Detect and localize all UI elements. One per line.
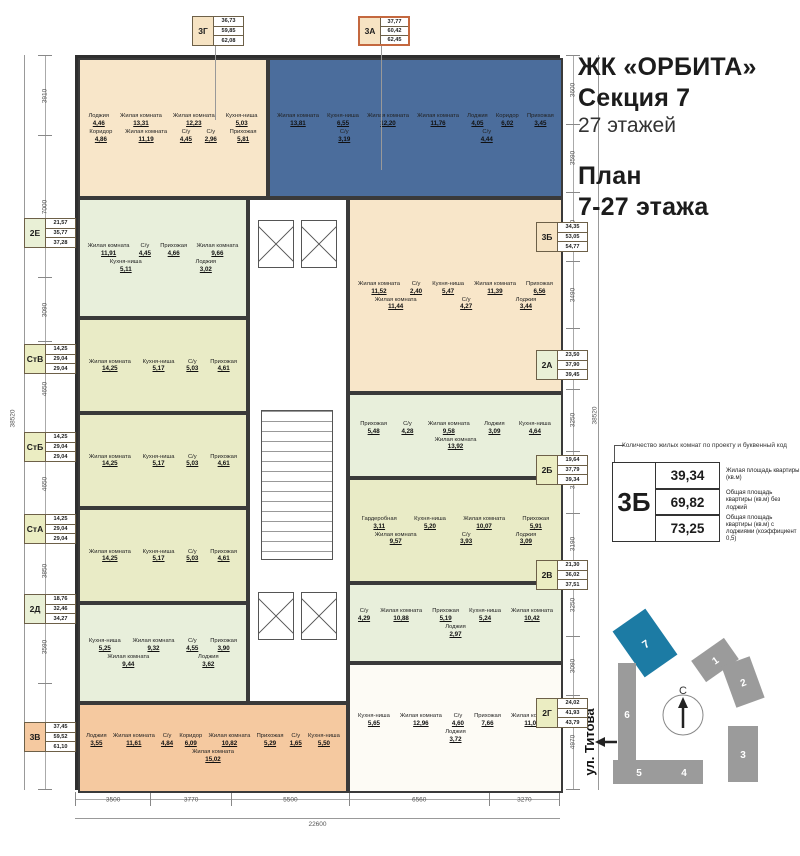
apartment-area-value: 14,25 [46, 515, 75, 525]
room-label: Жилая комната9,44 [107, 654, 149, 668]
apartment-area-value: 37,45 [46, 723, 75, 733]
room-label: С/у4,27 [460, 297, 472, 311]
room-label: С/у5,03 [186, 549, 198, 563]
room-label: Кухня-ниша4,64 [519, 421, 551, 435]
apartment-area-value: 29,04 [46, 364, 75, 373]
room-label: С/у1,65 [290, 733, 302, 747]
apartment-3a: Жилая комната13,81Кухня-ниша6,55Жилая ко… [268, 58, 563, 198]
apartment-area-value: 29,04 [46, 452, 75, 461]
room-label: Жилая комната11,61 [113, 733, 155, 747]
dimension-label: 3770 [184, 796, 198, 803]
room-label: Жилая комната11,91 [88, 243, 130, 257]
room-label: Жилая комната12,23 [173, 113, 215, 127]
svg-text:4: 4 [681, 768, 687, 779]
room-label: Кухня-ниша5,47 [432, 281, 464, 295]
room-label: С/у3,93 [460, 532, 472, 546]
dimension-label: 4650 [42, 477, 49, 491]
dimension-label: 7000 [42, 199, 49, 213]
apartment-area-value: 19,64 [558, 456, 587, 466]
apartment-2g: Кухня-ниша5,65Жилая комната12,96С/у4,60П… [348, 663, 563, 793]
apartment-code: 3Б [537, 223, 558, 251]
apartment-area-value: 60,42 [381, 27, 408, 36]
room-label: Жилая комната13,31 [120, 113, 162, 127]
compass-icon: С [663, 685, 703, 735]
room-label: С/у4,44 [481, 129, 493, 143]
svg-text:3: 3 [740, 750, 746, 761]
room-label: Жилая комната14,25 [89, 549, 131, 563]
legend-annotation-total-loggia: Общая площадь квартиры (кв.м) с лоджиями… [726, 514, 800, 544]
dimension-total-left: 38520 [10, 409, 17, 427]
room-label: Жилая комната11,19 [125, 129, 167, 143]
apartment-area-value: 37,28 [46, 238, 75, 247]
apartment-area-value: 29,04 [46, 355, 75, 365]
dimension-total-line-bottom [75, 818, 560, 819]
apartment-area-value: 29,04 [46, 443, 75, 453]
room-label: С/у4,84 [161, 733, 173, 747]
room-label: Лоджия3,72 [445, 729, 466, 743]
room-label: Лоджия3,55 [86, 733, 107, 747]
apartment-2b: Гардеробная3,11Кухня-ниша5,20Жилая комна… [348, 478, 563, 583]
room-label: Прихожая4,61 [210, 549, 237, 563]
room-label: Кухня-ниша5,17 [143, 454, 175, 468]
codebox-stv: СтВ14,2529,0429,04 [24, 344, 76, 374]
apartment-area-value: 54,77 [558, 242, 587, 251]
apartment-area-value: 37,77 [381, 18, 408, 27]
room-label: Жилая комната10,88 [380, 608, 422, 622]
legend-value-living: 39,34 [656, 462, 720, 490]
apartment-area-value: 53,05 [558, 233, 587, 243]
room-label: Лоджия3,09 [516, 532, 537, 546]
apartment-area-value: 37,90 [558, 361, 587, 371]
room-label: Жилая комната11,44 [375, 297, 417, 311]
plan-label: План [578, 161, 798, 192]
room-label: Кухня-ниша5,11 [110, 259, 142, 273]
apartment-area-value: 59,52 [46, 733, 75, 743]
floorplan-page: { "header": { "project": "ЖК «ОРБИТА»", … [0, 0, 800, 856]
legend-value-total-loggia: 73,25 [656, 514, 720, 542]
dimension-label: 3190 [570, 537, 577, 551]
room-label: Кухня-ниша5,20 [414, 516, 446, 530]
room-label: Жилая комната9,57 [375, 532, 417, 546]
apartment-code: СтБ [25, 433, 46, 461]
apartment-area-value: 39,45 [558, 370, 587, 379]
dimension-label: 3910 [42, 88, 49, 102]
legend-apartment-code: 3Б [612, 462, 656, 542]
room-label: Жилая комната11,52 [358, 281, 400, 295]
legend-annotation-living: Жилая площадь квартиры (кв.м) [726, 462, 800, 488]
dimension-label: 4970 [570, 735, 577, 749]
codebox-connector [215, 46, 216, 120]
dimension-label: 3250 [570, 598, 577, 612]
dimension-label: 3590 [570, 151, 577, 165]
apartment-area-value: 37,51 [558, 580, 587, 589]
codebox-2b: 2Б19,6437,7939,34 [536, 455, 588, 485]
room-label: С/у5,03 [186, 359, 198, 373]
apartment-area-value: 21,30 [558, 561, 587, 571]
room-label: Жилая комната10,07 [463, 516, 505, 530]
apartment-3b: Жилая комната11,52С/у2,40Кухня-ниша5,47Ж… [348, 198, 563, 393]
apartment-code: СтА [25, 515, 46, 543]
apartment-code: 3А [360, 18, 381, 44]
dimension-label: 5500 [283, 796, 297, 803]
room-label: Прихожая3,90 [210, 638, 237, 652]
apartment-area-value: 39,34 [558, 475, 587, 484]
dimension-label: 4650 [42, 382, 49, 396]
dimension-chain-left: 39107000309046504650385035905190 [38, 55, 52, 790]
dimension-label: 3250 [570, 413, 577, 427]
street-arrow-icon [595, 737, 617, 747]
codebox-sta: СтА14,2529,0429,04 [24, 514, 76, 544]
room-label: Прихожая4,66 [160, 243, 187, 257]
apartment-code: 2В [537, 561, 558, 589]
room-label: С/у3,19 [338, 129, 350, 143]
apartment-code: 2Д [25, 595, 46, 623]
apartment-area-value: 32,46 [46, 605, 75, 615]
apartment-stb: Жилая комната14,25Кухня-ниша5,17С/у5,03П… [78, 413, 248, 508]
room-label: Кухня-ниша5,24 [469, 608, 501, 622]
apartment-stv: Жилая комната14,25Кухня-ниша5,17С/у5,03П… [78, 318, 248, 413]
room-label: С/у4,55 [186, 638, 198, 652]
apartment-code: 2Е [25, 219, 46, 247]
codebox-2a: 2А23,5037,9039,45 [536, 350, 588, 380]
apartment-area-value: 41,93 [558, 709, 587, 719]
dimension-label: 3090 [570, 658, 577, 672]
codebox-3a: 3А37,7760,4262,45 [358, 16, 410, 46]
apartment-code: 3Г [193, 17, 214, 45]
room-label: Жилая комната10,82 [209, 733, 251, 747]
room-label: Кухня-ниша5,65 [358, 713, 390, 727]
codebox-2v: 2В21,3036,0237,51 [536, 560, 588, 590]
apartment-code: 2Б [537, 456, 558, 484]
room-label: Лоджия3,44 [516, 297, 537, 311]
dimension-label: 3590 [42, 640, 49, 654]
room-label: Жилая комната14,25 [89, 454, 131, 468]
codebox-2g: 2Г24,0241,9343,79 [536, 698, 588, 728]
codebox-2d: 2Д18,7632,4634,27 [24, 594, 76, 624]
room-label: Кухня-ниша5,17 [143, 359, 175, 373]
room-label: Лоджия2,97 [445, 624, 466, 638]
apartment-area-value: 14,25 [46, 345, 75, 355]
room-label: Коридор4,86 [89, 129, 112, 143]
floors-subtitle: 27 этажей [578, 113, 798, 139]
room-label: С/у2,96 [205, 129, 217, 143]
room-label: Кухня-ниша5,50 [308, 733, 340, 747]
apartment-sta: Жилая комната14,25Кухня-ниша5,17С/у5,03П… [78, 508, 248, 603]
apartment-area-value: 18,76 [46, 595, 75, 605]
dimension-total-right: 38520 [592, 406, 599, 424]
codebox-stb: СтБ14,2529,0429,04 [24, 432, 76, 462]
dimension-label: 3500 [106, 796, 120, 803]
room-label: Прихожая5,81 [230, 129, 257, 143]
project-title: ЖК «ОРБИТА» [578, 52, 798, 83]
dimension-label: 3600 [570, 83, 577, 97]
room-label: Прихожая5,48 [360, 421, 387, 435]
apartment-area-value: 23,50 [558, 351, 587, 361]
room-label: Прихожая5,91 [522, 516, 549, 530]
room-label: Жилая комната13,81 [277, 113, 319, 127]
room-label: С/у4,60 [452, 713, 464, 727]
apartment-area-value: 36,73 [214, 17, 243, 27]
legend-annotation-total: Общая площадь квартиры (кв.м) без лоджий [726, 488, 800, 514]
apartment-area-value: 62,08 [214, 36, 243, 45]
codebox-3v: 3В37,4559,5261,10 [24, 722, 76, 752]
apartment-2d: Кухня-ниша5,25Жилая комната9,32С/у4,55Пр… [78, 603, 248, 703]
plan-floors-label: 7-27 этажа [578, 192, 798, 223]
room-label: Коридор6,02 [496, 113, 519, 127]
apartment-area-value: 37,79 [558, 466, 587, 476]
room-label: Жилая комната11,76 [417, 113, 459, 127]
elevator-icon [258, 592, 294, 640]
apartment-area-value: 29,04 [46, 534, 75, 543]
codebox-3g: 3Г36,7359,8562,08 [192, 16, 244, 46]
room-label: С/у4,29 [358, 608, 370, 622]
dimension-total-line-left [24, 55, 25, 790]
room-label: Жилая комната11,39 [474, 281, 516, 295]
dimension-label: 3850 [42, 563, 49, 577]
room-label: Кухня-ниша5,17 [143, 549, 175, 563]
codebox-connector [381, 46, 382, 170]
room-label: Прихожая3,45 [527, 113, 554, 127]
dimension-label: 3490 [570, 288, 577, 302]
floor-plan: Лоджия4,46Жилая комната13,31Жилая комнат… [75, 55, 560, 790]
room-label: С/у5,03 [186, 454, 198, 468]
room-label: С/у4,28 [401, 421, 413, 435]
room-label: Жилая комната12,20 [367, 113, 409, 127]
room-label: Прихожая5,19 [432, 608, 459, 622]
apartment-area-value: 29,04 [46, 525, 75, 535]
room-label: Жилая комната12,96 [400, 713, 442, 727]
room-label: С/у4,45 [180, 129, 192, 143]
apartment-area-value: 61,10 [46, 742, 75, 751]
room-label: Жилая комната13,92 [435, 437, 477, 451]
apartment-2v: С/у4,29Жилая комната10,88Прихожая5,19Кух… [348, 583, 563, 663]
room-label: Прихожая4,61 [210, 359, 237, 373]
dimension-label: 6560 [412, 796, 426, 803]
apartment-code: 2А [537, 351, 558, 379]
apartment-code: 3В [25, 723, 46, 751]
room-label: Лоджия4,05 [467, 113, 488, 127]
room-label: Прихожая6,56 [526, 281, 553, 295]
room-label: Кухня-ниша5,25 [89, 638, 121, 652]
svg-text:6: 6 [624, 710, 630, 721]
apartment-area-value: 14,25 [46, 433, 75, 443]
apartment-area-value: 36,02 [558, 571, 587, 581]
apartment-area-value: 24,02 [558, 699, 587, 709]
room-label: Жилая комната9,58 [428, 421, 470, 435]
section-title: Секция 7 [578, 83, 798, 114]
svg-text:5: 5 [636, 768, 642, 779]
room-label: Коридор6,09 [179, 733, 202, 747]
elevator-icon [301, 220, 337, 268]
north-label: С [679, 685, 687, 697]
elevator-icon [258, 220, 294, 268]
building-3: 3 [728, 726, 758, 782]
apartment-3v: Лоджия3,55Жилая комната11,61С/у4,84Корид… [78, 703, 348, 793]
legend-callout: Количество жилых комнат по проекту и бук… [622, 442, 800, 449]
apartment-area-value: 21,57 [46, 219, 75, 229]
room-label: Жилая комната14,25 [89, 359, 131, 373]
room-label: Лоджия3,62 [198, 654, 219, 668]
apartment-area-value: 59,85 [214, 27, 243, 37]
apartment-code: 2Г [537, 699, 558, 727]
apartment-area-value: 34,35 [558, 223, 587, 233]
room-label: Жилая комната15,02 [192, 749, 234, 763]
building-4: 4 [665, 760, 703, 784]
apartment-area-value: 35,77 [46, 229, 75, 239]
site-map: 7 6 5 4 1 2 3 С ул. Титова [584, 602, 800, 802]
room-label: Лоджия3,09 [484, 421, 505, 435]
room-label: Гардеробная3,11 [362, 516, 397, 530]
legend-value-total: 69,82 [656, 488, 720, 516]
dimension-total-bottom: 22600 [75, 821, 560, 828]
dimension-chain-bottom: 35003770550065603270 [75, 792, 560, 806]
elevator-icon [301, 592, 337, 640]
building-5: 5 [613, 760, 665, 784]
room-label: Кухня-ниша6,55 [327, 113, 359, 127]
apartment-2a: Прихожая5,48С/у4,28Жилая комната9,58Лодж… [348, 393, 563, 478]
room-label: Кухня-ниша5,03 [226, 113, 258, 127]
room-label: С/у4,45 [139, 243, 151, 257]
apartment-area-value: 43,79 [558, 718, 587, 727]
apartment-3g: Лоджия4,46Жилая комната13,31Жилая комнат… [78, 58, 268, 198]
apartment-code: СтВ [25, 345, 46, 373]
apartment-area-value: 62,45 [381, 36, 408, 44]
room-label: Прихожая7,66 [474, 713, 501, 727]
room-label: Прихожая5,29 [257, 733, 284, 747]
dimension-label: 3270 [517, 796, 531, 803]
apartment-area-value: 34,27 [46, 614, 75, 623]
room-label: Лоджия3,02 [196, 259, 217, 273]
codebox-2e: 2Е21,5735,7737,28 [24, 218, 76, 248]
codebox-3b: 3Б34,3553,0554,77 [536, 222, 588, 252]
stair-elevator-core [248, 198, 348, 703]
title-block: ЖК «ОРБИТА» Секция 7 27 этажей План 7-27… [578, 52, 798, 222]
room-label: С/у2,40 [410, 281, 422, 295]
dimension-label: 3090 [42, 302, 49, 316]
room-label: Прихожая4,61 [210, 454, 237, 468]
room-label: Жилая комната10,42 [511, 608, 553, 622]
legend-box: 3Б 39,34 69,82 73,25 [612, 462, 720, 542]
room-label: Лоджия4,46 [88, 113, 109, 127]
room-label: Жилая комната9,32 [133, 638, 175, 652]
room-label: Жилая комната9,66 [196, 243, 238, 257]
apartment-2e: Жилая комната11,91С/у4,45Прихожая4,66Жил… [78, 198, 248, 318]
stairs-icon [261, 410, 333, 560]
building-6: 6 [618, 663, 636, 763]
